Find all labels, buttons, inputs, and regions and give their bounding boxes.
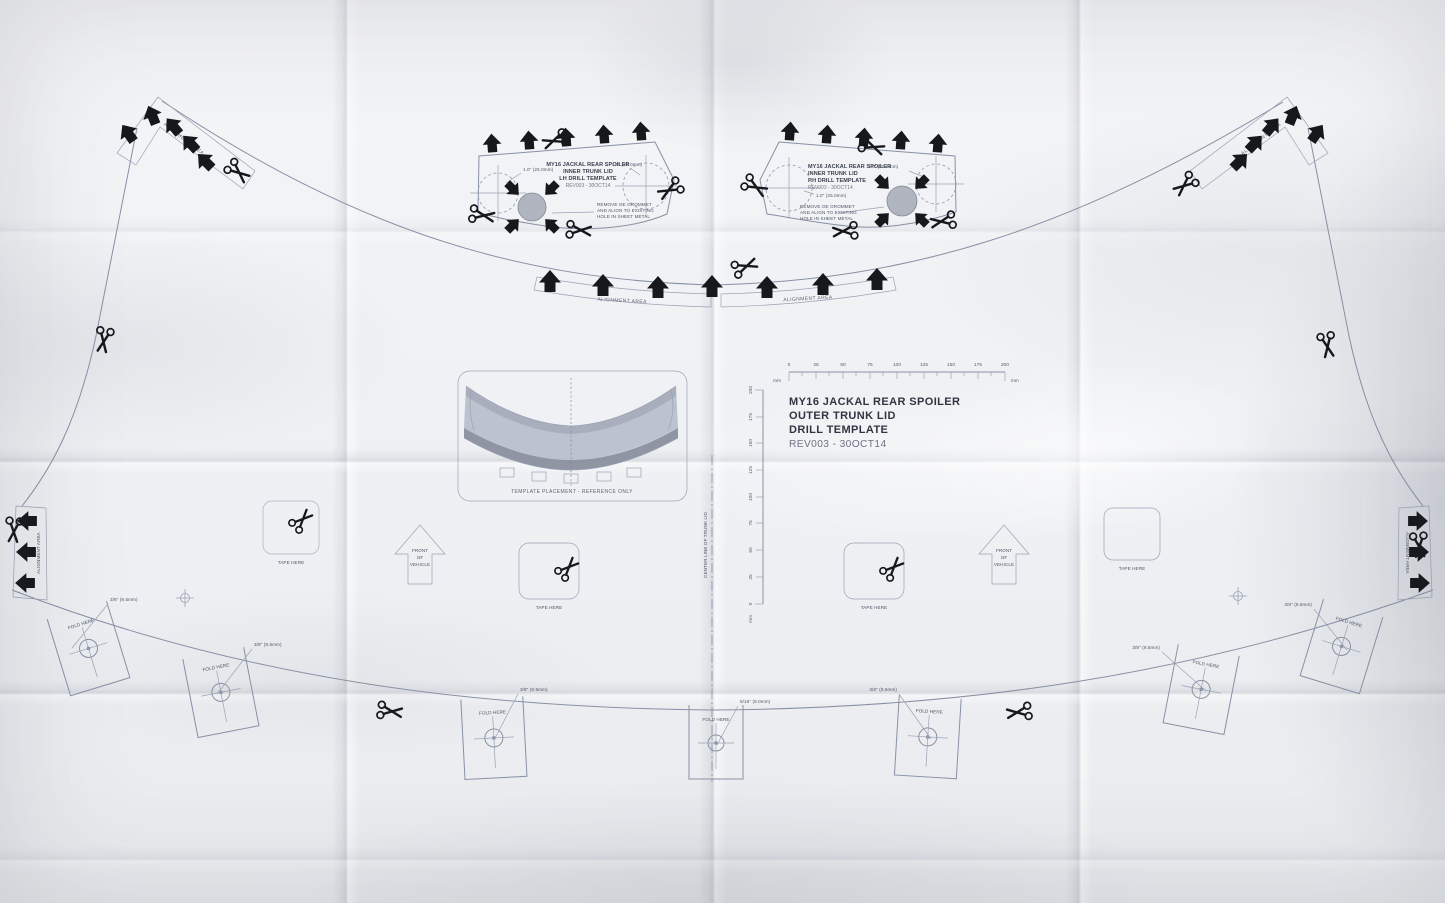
alignment-area-label: ALIGNMENT AREA [36, 531, 41, 573]
front-label: OF [417, 555, 424, 560]
scale-ruler-vertical: 200 175 150 125 100 75 50 25 0 mm [748, 386, 763, 623]
outer-template-left-edge [22, 128, 137, 506]
scissors-icon [930, 211, 957, 232]
note-line: HOLE IN SHEET METAL [597, 214, 650, 219]
front-of-vehicle-arrow: FRONT OF VEHICLE [979, 525, 1029, 584]
drill-crosshair [63, 622, 116, 683]
placement-caption: TEMPLATE PLACEMENT - REFERENCE ONLY [511, 489, 633, 495]
fold-here-label: FOLD HERE [67, 618, 94, 631]
arrow-icon [780, 121, 800, 141]
ruler-tick-label: 150 [947, 362, 955, 368]
note-line: AND ALIGN TO EXISTING [800, 210, 857, 215]
fold-tab: FOLD HERE [47, 601, 130, 696]
front-label: VEHICLE [994, 562, 1014, 567]
fold-here-label: FOLD HERE [702, 717, 729, 722]
title-rev-line: REV003 - 30OCT14 [566, 183, 611, 189]
scissors-icon [730, 255, 758, 279]
dimension-label: 1.0" (25.0mm) [868, 164, 899, 169]
tape-here-pad: TAPE HERE [519, 543, 581, 610]
arrow-icon [482, 133, 502, 153]
tape-here-label: TAPE HERE [536, 605, 563, 610]
fold-here-label: FOLD HERE [202, 662, 230, 672]
dimension-label: 1.0" (25.0mm) [523, 167, 554, 172]
drill-size-label: 3/8" (9.5mm) [254, 642, 282, 647]
fold-tab: FOLD HERE [461, 696, 527, 779]
ruler-tick-label: 150 [748, 439, 754, 447]
arrow-icon [114, 119, 142, 147]
title-line: RH DRILL TEMPLATE [808, 178, 866, 184]
arrow-icon [1280, 102, 1306, 128]
alignment-band-left-edge: ALIGNMENT AREA [13, 506, 47, 600]
scissors-icon [377, 701, 403, 721]
drill-size-label: 3/8" (9.5mm) [869, 687, 897, 692]
note-line: AND ALIGN TO EXISTING [597, 208, 654, 213]
arrow-icon [501, 213, 524, 236]
ruler-tick-label: 100 [748, 493, 754, 501]
note-line: HOLE IN SHEET METAL [800, 216, 853, 221]
scissors-icon [1317, 331, 1338, 358]
tape-here-pad: TAPE HERE [844, 543, 906, 610]
note-line: REMOVE OE GROMMET [597, 202, 652, 207]
drill-crosshair [1314, 620, 1367, 681]
title-line: LH DRILL TEMPLATE [559, 176, 617, 182]
ruler-tick-label: 100 [893, 362, 901, 368]
ruler-tick-label: 175 [748, 413, 754, 421]
ruler-tick-label: 25 [748, 574, 754, 580]
fold-tab: FOLD HERE [689, 705, 743, 779]
title-line: MY16 JACKAL REAR SPOILER [789, 396, 960, 408]
alignment-band-right-edge: ALIGNMENT AREA [1398, 506, 1432, 600]
title-line: INNER TRUNK LID [808, 171, 858, 177]
arrow-icon [1408, 511, 1428, 531]
ruler-tick-label: 25 [813, 362, 819, 368]
outer-template-title-block: MY16 JACKAL REAR SPOILER OUTER TRUNK LID… [789, 396, 960, 450]
ruler-tick-label: 75 [867, 362, 873, 368]
arrow-icon [891, 130, 911, 150]
drill-size-label: 5/16" (8.0mm) [740, 699, 771, 704]
trunk-center-line: CENTER LINE OF TRUNK LID [703, 455, 712, 782]
arrow-icon [1410, 573, 1430, 593]
paper-template-photo: ALIGNMENT AREA ALIGNMENT AREA ALIGNMENT … [0, 0, 1445, 903]
dimension-label: 1.0" (25.0mm) [612, 162, 643, 167]
arrow-icon [539, 213, 562, 236]
grommet-note: REMOVE OE GROMMET AND ALIGN TO EXISTING … [800, 204, 857, 221]
fold-tab: FOLD HERE [894, 695, 961, 779]
inner-template-lh: MY16 JACKAL REAR SPOILER INNER TRUNK LID… [468, 121, 685, 240]
scissors-icon [468, 205, 495, 226]
front-label: FRONT [996, 548, 1012, 553]
arrow-icon [16, 542, 36, 562]
outer-template-bottom-cut-line [12, 590, 1433, 710]
outer-template-top-cut-line [162, 101, 1283, 285]
inner-template-rh: MY16 JACKAL REAR SPOILER INNER TRUNK LID… [740, 121, 964, 241]
ruler-tick-label: 50 [840, 362, 846, 368]
scissors-icon [740, 173, 769, 200]
ruler-tick-label: 125 [920, 362, 928, 368]
registration-crosshair [176, 589, 194, 607]
drill-crosshair [1176, 664, 1225, 723]
ruler-unit-label: mm [1011, 378, 1019, 383]
arrow-icon [1303, 119, 1331, 147]
ruler-tick-label: 125 [748, 466, 754, 474]
scissors-icon [1171, 170, 1200, 199]
scissors-icon [554, 555, 582, 583]
alignment-area-label: ALIGNMENT AREA [597, 297, 647, 306]
front-label: OF [1001, 555, 1008, 560]
grommet-target [501, 177, 562, 236]
dimension-label: 1.0" (25.0mm) [816, 193, 847, 198]
drill-crosshair [698, 723, 734, 769]
drill-crosshair [473, 715, 516, 769]
tape-here-pad: TAPE HERE [1104, 508, 1160, 571]
grommet-note: REMOVE OE GROMMET AND ALIGN TO EXISTING … [597, 202, 654, 219]
drill-crosshair [906, 714, 949, 768]
title-line: OUTER TRUNK LID [789, 410, 896, 422]
scale-ruler-horizontal: 0 25 50 75 100 125 150 175 200 mm mm [773, 362, 1019, 383]
tape-here-pad: TAPE HERE [263, 501, 319, 565]
fold-here-label: FOLD HERE [916, 708, 943, 715]
ruler-tick-label: 75 [748, 520, 754, 526]
arrow-icon [139, 102, 165, 128]
arrow-icon [501, 177, 524, 200]
registration-crosshair [1229, 587, 1247, 605]
drill-size-label: 3/8" (9.5mm) [1284, 602, 1312, 607]
scissors-icon [288, 507, 316, 535]
trunk-placement-diagram: TEMPLATE PLACEMENT - REFERENCE ONLY [458, 371, 687, 501]
arrow-icon [15, 573, 35, 593]
arrow-icon [866, 268, 888, 290]
ruler-unit-label: mm [773, 378, 781, 383]
center-line-label: CENTER LINE OF TRUNK LID [703, 511, 708, 577]
scissors-icon [566, 220, 591, 239]
title-line: DRILL TEMPLATE [789, 424, 888, 436]
alignment-band-center-right: ALIGNMENT AREA [721, 277, 896, 307]
drill-size-label: 3/8" (9.5mm) [520, 687, 548, 692]
grommet-target [871, 171, 932, 230]
scissors-icon [879, 555, 907, 583]
ruler-tick-label: 0 [788, 362, 791, 368]
title-line: INNER TRUNK LID [563, 169, 613, 175]
note-line: REMOVE OE GROMMET [800, 204, 855, 209]
outer-template-right-edge [1308, 128, 1423, 506]
alignment-band-center-left: ALIGNMENT AREA [534, 277, 711, 307]
tape-here-label: TAPE HERE [1119, 566, 1146, 571]
tape-here-label: TAPE HERE [861, 605, 888, 610]
fold-tab: FOLD HERE [1300, 599, 1383, 694]
fold-here-label: FOLD HERE [1192, 659, 1220, 669]
front-label: FRONT [412, 548, 428, 553]
arrow-icon [594, 124, 614, 144]
arrow-icon [756, 276, 778, 298]
alignment-band-top-left: ALIGNMENT AREA [114, 97, 255, 189]
arrow-icon [631, 121, 651, 141]
trunk-lid-illustration [464, 378, 678, 486]
drill-size-label: 3/8" (9.5mm) [1132, 645, 1160, 650]
scissors-icon [1006, 702, 1032, 722]
front-label: VEHICLE [410, 562, 430, 567]
ruler-tick-label: 50 [748, 547, 754, 553]
fold-here-label: FOLD HERE [479, 709, 506, 715]
arrow-icon [928, 133, 948, 153]
ruler-tick-label: 0 [748, 602, 754, 605]
ruler-tick-label: 200 [748, 386, 754, 394]
tape-here-label: TAPE HERE [278, 560, 305, 565]
drill-size-label: 3/8" (9.5mm) [110, 597, 138, 602]
arrow-icon [817, 124, 837, 144]
ruler-unit-label: mm [748, 615, 753, 623]
arrow-icon [17, 511, 37, 531]
printed-template-artwork: ALIGNMENT AREA ALIGNMENT AREA ALIGNMENT … [0, 0, 1445, 903]
arrow-icon [539, 270, 561, 292]
arrow-icon [647, 276, 669, 298]
front-of-vehicle-arrow: FRONT OF VEHICLE [395, 525, 445, 584]
scissors-icon [93, 326, 114, 353]
ruler-tick-label: 200 [1001, 362, 1009, 368]
drill-crosshair [197, 667, 246, 726]
title-rev-line: REV003 - 30OCT14 [789, 439, 887, 450]
ruler-tick-label: 175 [974, 362, 982, 368]
arrow-icon [519, 130, 539, 150]
